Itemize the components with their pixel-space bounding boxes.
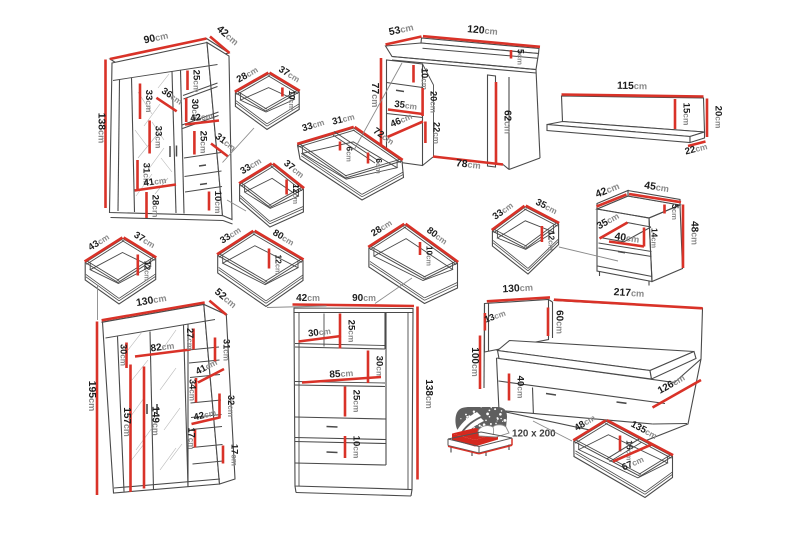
svg-text:12cm: 12cm bbox=[546, 231, 556, 251]
svg-text:5cm: 5cm bbox=[516, 49, 526, 65]
svg-text:25cm: 25cm bbox=[351, 390, 362, 413]
svg-text:217cm: 217cm bbox=[613, 287, 644, 300]
svg-text:33cm: 33cm bbox=[143, 90, 154, 113]
svg-text:32cm: 32cm bbox=[226, 395, 236, 417]
svg-text:120 x 200: 120 x 200 bbox=[512, 429, 556, 440]
svg-text:60cm: 60cm bbox=[554, 310, 565, 334]
svg-text:90cm: 90cm bbox=[352, 293, 376, 304]
svg-text:10cm: 10cm bbox=[420, 68, 430, 90]
svg-text:40cm: 40cm bbox=[515, 376, 526, 399]
svg-text:48cm: 48cm bbox=[689, 221, 700, 245]
svg-text:27cm: 27cm bbox=[185, 328, 195, 350]
svg-text:62cm: 62cm bbox=[502, 110, 513, 134]
svg-text:31cm: 31cm bbox=[222, 339, 232, 361]
svg-text:115cm: 115cm bbox=[617, 81, 647, 92]
svg-text:33cm: 33cm bbox=[153, 126, 164, 149]
svg-text:10cm: 10cm bbox=[287, 90, 297, 110]
svg-text:138cm: 138cm bbox=[423, 379, 434, 409]
svg-text:30cm: 30cm bbox=[119, 344, 129, 366]
svg-text:30cm: 30cm bbox=[374, 356, 385, 379]
svg-text:157cm: 157cm bbox=[121, 407, 132, 437]
svg-text:42cm: 42cm bbox=[296, 293, 320, 304]
svg-text:5cm: 5cm bbox=[670, 204, 680, 220]
svg-text:10cm: 10cm bbox=[212, 191, 223, 214]
svg-text:138cm: 138cm bbox=[96, 113, 107, 144]
svg-text:10cm: 10cm bbox=[425, 246, 435, 266]
svg-text:34cm: 34cm bbox=[188, 379, 198, 401]
svg-text:25cm: 25cm bbox=[191, 70, 202, 93]
svg-text:20cm: 20cm bbox=[713, 106, 724, 129]
svg-text:15cm: 15cm bbox=[681, 103, 692, 126]
svg-text:77cm: 77cm bbox=[369, 83, 380, 108]
svg-text:12cm: 12cm bbox=[291, 184, 301, 204]
svg-text:25cm: 25cm bbox=[197, 131, 208, 154]
svg-text:10cm: 10cm bbox=[351, 436, 362, 459]
svg-text:14cm: 14cm bbox=[650, 228, 660, 248]
svg-text:22cm: 22cm bbox=[432, 122, 442, 144]
svg-text:12cm: 12cm bbox=[142, 261, 152, 281]
svg-text:6cm: 6cm bbox=[345, 147, 355, 163]
svg-text:149cm: 149cm bbox=[150, 406, 161, 436]
svg-text:195cm: 195cm bbox=[86, 381, 97, 412]
svg-text:25cm: 25cm bbox=[346, 320, 357, 343]
svg-text:28cm: 28cm bbox=[150, 195, 161, 218]
svg-text:100cm: 100cm bbox=[469, 347, 480, 377]
svg-text:12cm: 12cm bbox=[274, 254, 284, 274]
svg-text:6cm: 6cm bbox=[374, 158, 384, 174]
svg-text:17cm: 17cm bbox=[230, 444, 240, 466]
svg-text:17cm: 17cm bbox=[187, 428, 197, 450]
svg-text:20cm: 20cm bbox=[429, 91, 439, 113]
